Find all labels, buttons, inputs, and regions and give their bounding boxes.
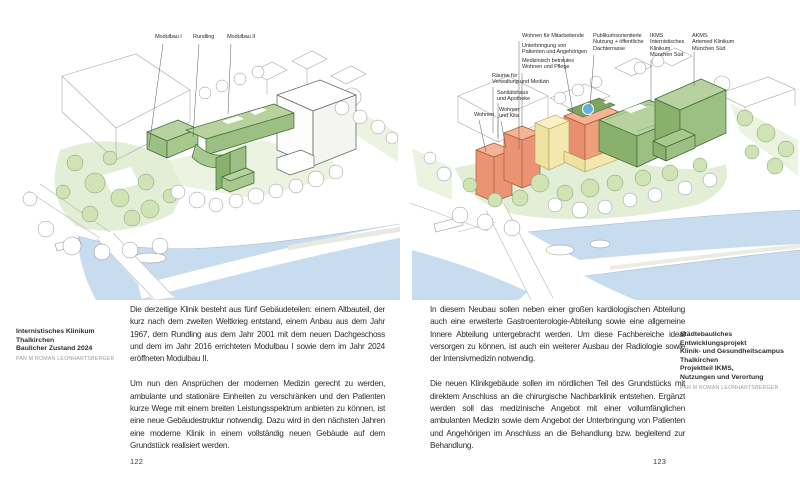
illustration-development-project: Wohnen für Mitarbeitende Unterbringung v…	[400, 0, 800, 300]
label-publikumsorientiert: Publikumsorientierte Nutzung + öffentlic…	[593, 33, 644, 52]
paragraph: Um nun den Ansprüchen der modernen Mediz…	[130, 378, 385, 452]
caption-credit: PAN M ROMAN LEONHARTSBERGER	[680, 385, 795, 392]
page-number-123: 123	[653, 457, 666, 466]
illustration-existing-clinic: Modulbau I Rundling Modulbau II	[0, 0, 400, 300]
paragraph: In diesem Neubau sollen neben einer groß…	[430, 304, 685, 365]
label-unterbringung: Unterbringung von Patienten und Angehöri…	[522, 43, 587, 56]
axonometric-drawing-2024	[0, 0, 400, 300]
label-betreutes-wohnen: Medizinisch betreutes Wohnen und Pflege	[522, 58, 574, 71]
label-verwaltung: Räume für Verwaltung und Medizin	[492, 73, 549, 86]
body-text-right: In diesem Neubau sollen neben einer groß…	[430, 304, 685, 452]
label-sanitaetshaus: Sanitätshaus und Apotheke	[497, 90, 530, 103]
river-isar	[412, 210, 800, 300]
label-modulbau2: Modulbau II	[227, 34, 255, 40]
body-text-left: Die derzeitige Klinik besteht aus fünf G…	[130, 304, 385, 452]
page-right: Wohnen für Mitarbeitende Unterbringung v…	[400, 0, 800, 488]
caption-development-project: Städtebauliches Entwicklungsprojekt Klin…	[680, 331, 795, 392]
label-wohnen-kita: Wohnen und Kita	[499, 107, 519, 120]
paragraph: Die derzeitige Klinik besteht aus fünf G…	[130, 304, 385, 365]
caption-credit: PAN M ROMAN LEONHARTSBERGER	[16, 356, 131, 363]
paragraph: Die neuen Klinikgebäude sollen im nördli…	[430, 378, 685, 452]
label-wohnen: Wohnen	[474, 112, 494, 118]
roof-pool	[583, 104, 594, 115]
label-wohnen-mitarbeitende: Wohnen für Mitarbeitende	[522, 33, 584, 39]
page-number-122: 122	[130, 457, 143, 466]
label-modulbau1: Modulbau I	[155, 34, 182, 40]
caption-existing-state: Internistisches Klinikum Thalkirchen Bau…	[16, 328, 131, 363]
caption-title: Internistisches Klinikum Thalkirchen Bau…	[16, 328, 131, 354]
label-ikms: IKMS Internistisches Klinikum München Sü…	[650, 33, 684, 58]
label-rundling: Rundling	[193, 34, 214, 40]
page-left: Modulbau I Rundling Modulbau II Internis…	[0, 0, 400, 488]
caption-title: Städtebauliches Entwicklungsprojekt Klin…	[680, 331, 795, 383]
label-akms: AKMS Artemed Klinikum München Süd	[692, 33, 734, 52]
akms-green-building	[653, 79, 726, 161]
